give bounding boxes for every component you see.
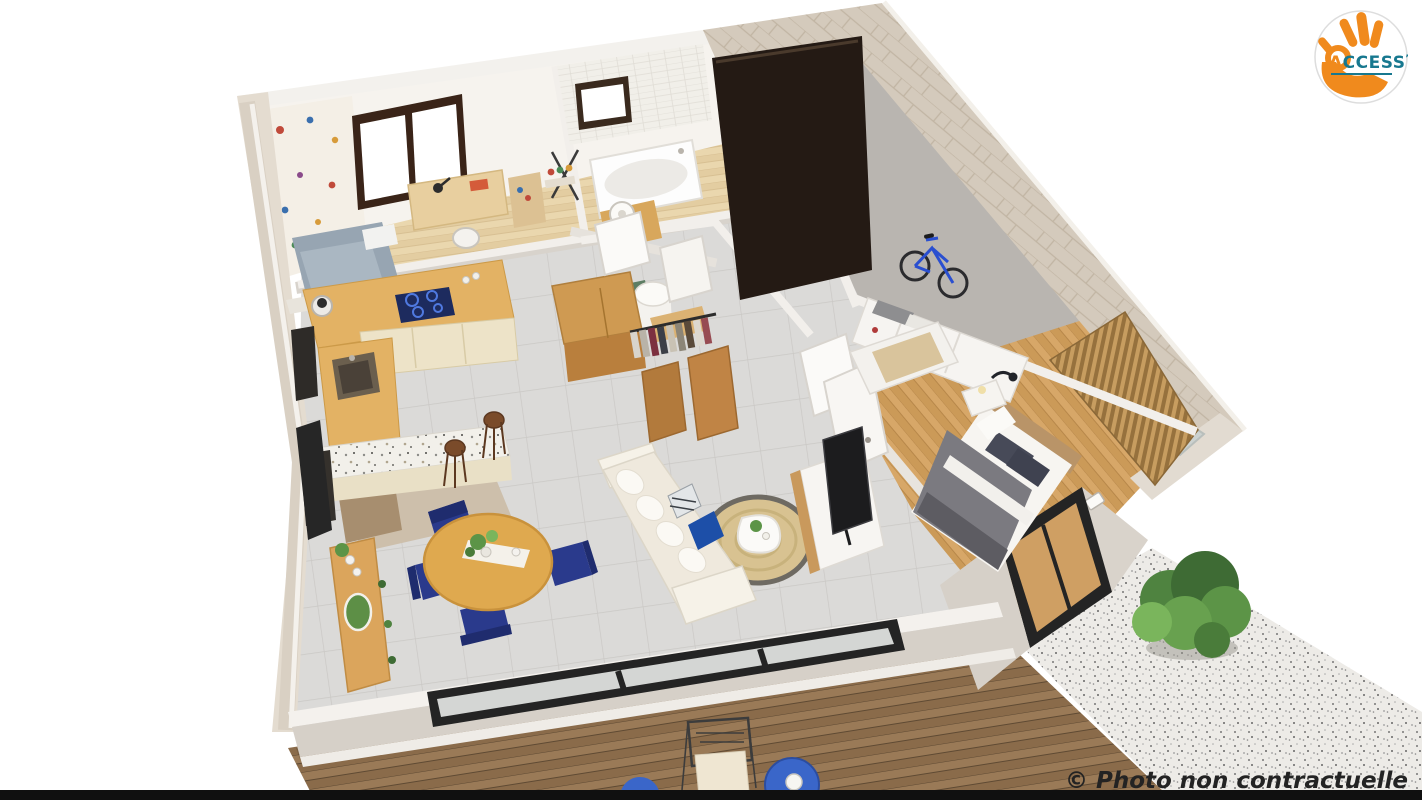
floorplan-render: ACCESS’ © Photo non contractuelle [0,0,1422,800]
book-shelf [508,172,546,228]
decor-tray [345,594,371,630]
desk-chair [453,228,479,248]
coffee-machine [312,296,332,316]
garage-door [712,36,872,300]
logo-text: ACCESS’ [1329,53,1409,73]
floorplan-scene: ACCESS’ © Photo non contractuelle [0,0,1422,800]
wc-door [660,236,712,302]
outdoor-cup [786,774,802,790]
bathroom-window [575,76,632,130]
coffee-table [738,515,780,552]
kitchen-sink [332,352,380,400]
photo-disclaimer: © Photo non contractuelle [1065,768,1408,794]
entry-plant [335,543,349,557]
access-logo: ACCESS’ [1315,11,1409,103]
